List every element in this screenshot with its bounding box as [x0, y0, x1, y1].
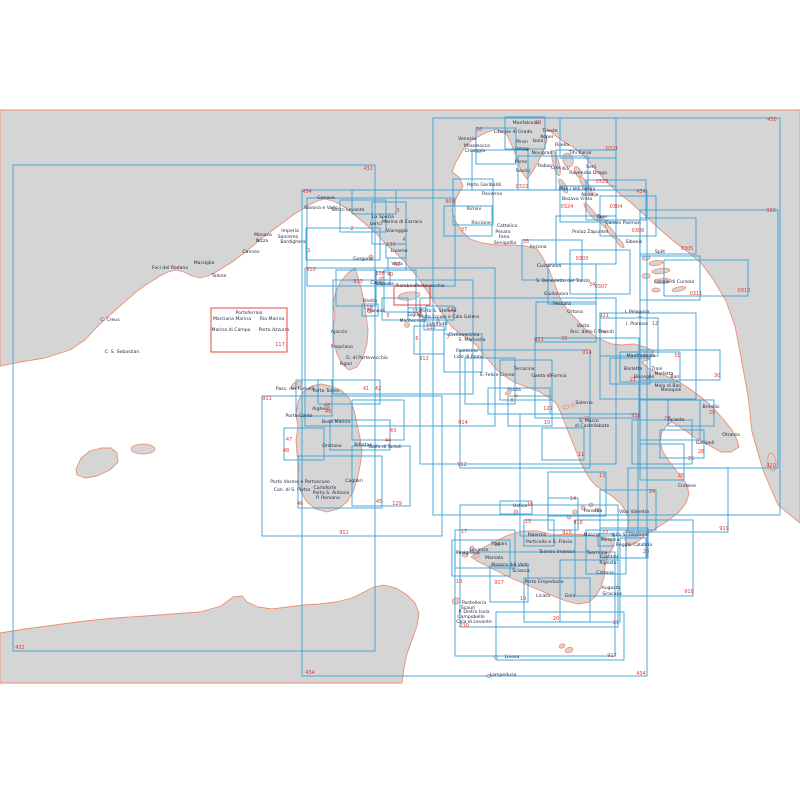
- place-label: Prolaz Zapuntel: [572, 229, 608, 235]
- place-label: Marsiglia: [194, 260, 215, 266]
- chart-number: 430: [767, 117, 777, 123]
- chart-number: 37: [461, 227, 467, 233]
- place-label: Favignana: [456, 550, 480, 556]
- chart-number: 10: [544, 420, 550, 426]
- place-label: Golfo di Tortoli: [368, 444, 401, 450]
- place-label: Split: [655, 249, 665, 255]
- place-label: Propriano: [331, 344, 353, 350]
- place-label: Portoferraio: [236, 310, 263, 316]
- place-label: S. Benedetto del Tronto: [536, 278, 590, 284]
- place-label: Litorale di Grado: [494, 129, 533, 135]
- place-label: Reggio Calabria: [616, 542, 652, 548]
- place-label: Bordighera: [280, 239, 306, 245]
- island: [131, 444, 155, 454]
- place-label: Venezia: [458, 136, 476, 142]
- place-label: Canale di Curzola: [654, 279, 694, 285]
- place-label: Ancona: [529, 244, 546, 250]
- island: [573, 510, 578, 514]
- chart-number: 13: [599, 473, 605, 479]
- place-label: Porec: [515, 159, 528, 165]
- chart-number: 18: [456, 579, 462, 585]
- place-label: Cala di Levante: [456, 619, 492, 625]
- island: [649, 260, 664, 267]
- place-label: Crotone: [678, 483, 696, 489]
- chart-number: 28: [698, 449, 704, 455]
- place-label: Sestri Levante: [332, 207, 365, 213]
- island: [564, 646, 573, 653]
- island: [652, 288, 660, 292]
- land-africa: [0, 585, 419, 683]
- place-label: Izola: [533, 138, 544, 144]
- place-label: Marina di Carrara: [382, 219, 422, 225]
- chart-number: 30: [714, 373, 720, 379]
- place-label: Alghero: [312, 406, 330, 412]
- place-label: Marciana Marina: [213, 316, 251, 322]
- chart-index-map-page: 4324324344344344344309209209099109119119…: [0, 0, 800, 800]
- chart-number: 40: [387, 272, 393, 278]
- place-label: Siracusa: [602, 591, 622, 597]
- place-label: Licata: [536, 593, 550, 599]
- place-label: Lerici: [370, 221, 382, 227]
- place-label: Porto Torres: [312, 388, 340, 394]
- island: [572, 404, 575, 407]
- island: [514, 510, 518, 514]
- chart-number: 44: [385, 438, 391, 444]
- place-label: Porto Ercole e Cala Galera: [419, 314, 479, 320]
- chart-number: 434: [305, 670, 315, 676]
- place-label: Gallipoli: [696, 440, 714, 446]
- island: [558, 643, 565, 649]
- island: [451, 597, 461, 605]
- place-label: Pescara: [553, 301, 571, 307]
- chart-number: 6: [415, 336, 418, 342]
- chart-number: 22: [602, 530, 608, 536]
- place-label: Anc. delle I. Tremiti: [570, 329, 614, 335]
- place-label: Ajaccio: [331, 329, 348, 335]
- chart-number: 912: [457, 462, 467, 468]
- chart-number: 0310: [738, 288, 751, 294]
- chart-number: 136: [386, 242, 396, 248]
- chart-number: 20: [553, 616, 559, 622]
- place-label: Cattolica: [497, 223, 518, 229]
- place-label: Augusta: [602, 585, 621, 591]
- chart-number: 920: [766, 463, 776, 469]
- place-label: di Castellabate: [575, 423, 610, 429]
- chart-number: 914: [582, 350, 592, 356]
- chart-number: 919: [719, 526, 729, 532]
- chart-number: 913: [353, 279, 363, 285]
- place-label: Tajer: [596, 214, 608, 220]
- place-label: Rabac: [538, 163, 553, 169]
- place-label: Vada: [391, 261, 403, 267]
- place-label: Mali i Veli Losinj: [559, 186, 595, 192]
- place-label: Cres: [551, 165, 562, 171]
- place-label: Manfredonia: [627, 353, 656, 359]
- chart-number: 29: [709, 410, 715, 416]
- place-label: Gaeta e Formia: [531, 373, 566, 379]
- place-label: Novigrad: [532, 150, 553, 156]
- place-label: Marina di Campo: [211, 327, 250, 333]
- chart-number: 26: [678, 473, 684, 479]
- place-label: Civitanova: [537, 263, 562, 269]
- chart-number: 0305: [681, 246, 694, 252]
- place-label: S. Felice Circeo: [480, 372, 515, 378]
- chart-number: 12: [652, 321, 658, 327]
- place-label: Portovecchio: [415, 283, 445, 289]
- chart-number: 117: [275, 342, 285, 348]
- chart-number: 0324: [561, 204, 574, 210]
- place-label: I. Pianosa: [626, 321, 648, 327]
- chart-number: 11: [578, 452, 584, 458]
- chart-number: 2: [350, 226, 353, 232]
- chart-number: 0311: [690, 291, 703, 297]
- place-label: Imperia: [281, 228, 299, 234]
- chart-number: 914: [458, 420, 468, 426]
- place-label: Porto Conte: [286, 413, 313, 419]
- chart-number: 36: [476, 127, 482, 133]
- chart-number: 33: [561, 336, 567, 342]
- chart-number: 1: [307, 248, 310, 254]
- place-label: Umag: [515, 146, 529, 152]
- place-label: Palermo: [528, 532, 547, 538]
- place-label: Cannes: [242, 249, 260, 255]
- place-label: C. S. Sebastian: [105, 349, 140, 355]
- place-label: Chioggia: [465, 148, 485, 154]
- chart-number: 47: [286, 437, 292, 443]
- place-label: Tihi Kanal: [568, 150, 591, 156]
- place-label: Bozava Vrela: [562, 196, 592, 202]
- place-label: Figari: [340, 361, 352, 367]
- place-label: Salerno: [575, 400, 593, 406]
- place-label: Ortona: [567, 309, 583, 315]
- place-label: Giannutri: [426, 321, 447, 327]
- place-label: Oristano: [322, 443, 342, 449]
- place-label: Monfalcone: [513, 120, 540, 126]
- place-label: G. di Portovecchio: [346, 355, 388, 361]
- land-mallorca: [76, 448, 118, 478]
- chart-number: 921: [599, 313, 609, 319]
- chart-number: 434: [636, 671, 646, 677]
- place-label: Gela: [565, 593, 576, 599]
- chart-number: 0322: [516, 184, 529, 190]
- chart-number: 15: [525, 519, 531, 525]
- chart-number: 432: [15, 645, 25, 651]
- place-label: Bosa Marina: [322, 419, 350, 425]
- chart-number: 116: [375, 271, 385, 277]
- place-label: Vasto: [577, 323, 590, 329]
- place-label: Linosa: [505, 654, 520, 660]
- chart-number: 434: [636, 189, 646, 195]
- place-label: Piran: [516, 139, 528, 145]
- chart-number: 432: [363, 166, 373, 172]
- place-label: Piombino: [395, 283, 416, 289]
- place-label: Porto S. Stefano: [420, 308, 457, 314]
- place-label: Porto Vesme e Portoscuso: [270, 479, 330, 485]
- chart-number: 911: [339, 530, 349, 536]
- place-label: Catania: [596, 570, 614, 576]
- chart-number: 17: [461, 529, 467, 535]
- place-label: Monopoli: [661, 387, 682, 393]
- chart-number: 0304: [610, 204, 623, 210]
- place-label: Can. di S. Pietro: [274, 487, 311, 493]
- chart-number: 0321: [606, 146, 619, 152]
- place-label: Viareggio: [386, 228, 408, 234]
- place-label: Livorno: [391, 248, 408, 254]
- chart-number: 0307: [595, 284, 608, 290]
- place-label: Riccione: [471, 220, 491, 226]
- chart-number: 3: [396, 208, 399, 214]
- place-label: Foci del Rodano: [152, 265, 188, 271]
- place-label: Brindisi: [702, 404, 719, 410]
- chart-number: 915: [562, 530, 572, 536]
- chart-number: 920: [766, 208, 776, 214]
- place-label: Terracina: [513, 366, 535, 372]
- place-label: Ravenska Draga: [569, 170, 607, 176]
- place-label: Pass. dei Fornelli: [276, 386, 314, 392]
- chart-number: 48: [283, 448, 289, 454]
- place-label: Canale Pasman: [605, 220, 640, 226]
- chart-number: 25: [688, 456, 694, 462]
- chart-number: 917: [494, 580, 504, 586]
- chart-number: 922: [534, 337, 544, 343]
- place-label: I. Pelagosa: [625, 309, 650, 315]
- place-label: Taranto: [666, 417, 684, 423]
- place-label: Porto Empedocle: [525, 579, 564, 585]
- chart-number: 918: [573, 520, 583, 526]
- chart-number: 42: [375, 386, 381, 392]
- place-label: Rimini: [467, 206, 481, 212]
- place-label: Porticello e S. Flavia: [526, 539, 572, 545]
- place-label: Mazara del Vallo: [491, 562, 529, 568]
- chart-number: 909: [445, 199, 455, 205]
- chart-number: 21: [613, 620, 619, 626]
- chart-number: 0308: [632, 228, 645, 234]
- land-layer: [0, 110, 800, 683]
- place-label: Trapani: [490, 541, 508, 547]
- place-label: C. Creus: [100, 317, 120, 323]
- place-label: Rovinj: [516, 168, 530, 174]
- place-label: Nizza: [256, 238, 269, 244]
- chart-number: 911: [262, 396, 272, 402]
- place-label: Riposto: [599, 560, 616, 566]
- place-label: P. Romano: [316, 495, 340, 501]
- place-label: Lampedusa: [490, 672, 517, 678]
- place-label: Gorgona: [353, 256, 373, 262]
- chart-number: 129: [392, 501, 402, 507]
- place-label: Fiumicino: [456, 348, 478, 354]
- island: [398, 291, 421, 302]
- chart-number: 4: [402, 237, 405, 243]
- place-label: Calvi: [370, 280, 381, 286]
- place-label: Ponza: [507, 387, 521, 393]
- place-label: Rio Marina: [260, 316, 285, 322]
- place-label: Panarea: [584, 508, 603, 514]
- chart-number: 8: [510, 398, 513, 404]
- place-label: Bari: [670, 374, 679, 380]
- place-label: Otranto: [722, 432, 740, 438]
- place-label: Marsala: [485, 555, 503, 561]
- chart-number: 915: [631, 413, 641, 419]
- place-label: Cagliari: [345, 478, 362, 484]
- chart-number: 14: [570, 496, 576, 502]
- chart-number: 35: [523, 239, 529, 245]
- place-label: Vibo Valentia: [619, 509, 649, 515]
- place-label: Sibenik: [626, 239, 643, 245]
- place-label: Porto Azzurro: [259, 327, 290, 333]
- chart-number: 31: [674, 353, 680, 359]
- place-label: Fano: [499, 234, 510, 240]
- place-label: Termini Imerese: [538, 549, 576, 555]
- place-label: Porto Garibaldi: [467, 182, 501, 188]
- place-label: Ravenna: [482, 191, 502, 197]
- chart-number: 917: [607, 653, 617, 659]
- chart-number: 45: [376, 499, 382, 505]
- nautical-chart-index-map: 4324324344344344344309209209099109119119…: [0, 0, 800, 800]
- chart-number: 910: [306, 267, 316, 273]
- place-label: Senj: [586, 164, 596, 170]
- place-label: Rijeka: [555, 142, 569, 148]
- chart-number: 16: [527, 502, 533, 508]
- chart-number: 43: [390, 428, 396, 434]
- chart-number: 5: [386, 313, 389, 319]
- place-label: Lido di Roma: [454, 354, 484, 360]
- island: [652, 268, 670, 275]
- chart-number: 0323: [596, 179, 609, 185]
- place-label: Giulianova: [544, 291, 569, 297]
- place-label: Pianosa: [367, 308, 385, 314]
- chart-coverage-rect: [306, 228, 380, 260]
- chart-number: 24: [649, 489, 655, 495]
- place-label: Tolone: [211, 273, 227, 279]
- island: [672, 286, 687, 293]
- place-label: Barletta: [624, 366, 643, 372]
- place-label: Genova: [317, 195, 335, 201]
- place-label: Sciacca: [512, 568, 530, 574]
- chart-number: 0303: [576, 256, 589, 262]
- chart-number: 23: [643, 549, 649, 555]
- place-label: S. Marinella: [459, 337, 486, 343]
- chart-number: 19: [520, 596, 526, 602]
- place-label: Monaco: [254, 232, 272, 238]
- island: [642, 274, 650, 279]
- island: [563, 405, 569, 409]
- chart-number: 912: [419, 356, 429, 362]
- place-label: Messina: [601, 537, 620, 543]
- place-label: Milazzo: [584, 532, 601, 538]
- chart-number: 918: [684, 589, 694, 595]
- place-label: Ustica: [513, 503, 527, 509]
- chart-number: 434: [302, 189, 312, 195]
- land-europe: [0, 110, 800, 546]
- chart-number: 46: [297, 501, 303, 507]
- place-label: Bastia: [363, 298, 377, 304]
- place-label: Senigallia: [494, 240, 516, 246]
- chart-number: 127: [543, 406, 553, 412]
- place-label: Trieste: [541, 128, 557, 134]
- chart-number: 41: [363, 386, 369, 392]
- place-label: Bisceglie: [634, 374, 655, 380]
- place-label: Taormina: [586, 550, 608, 556]
